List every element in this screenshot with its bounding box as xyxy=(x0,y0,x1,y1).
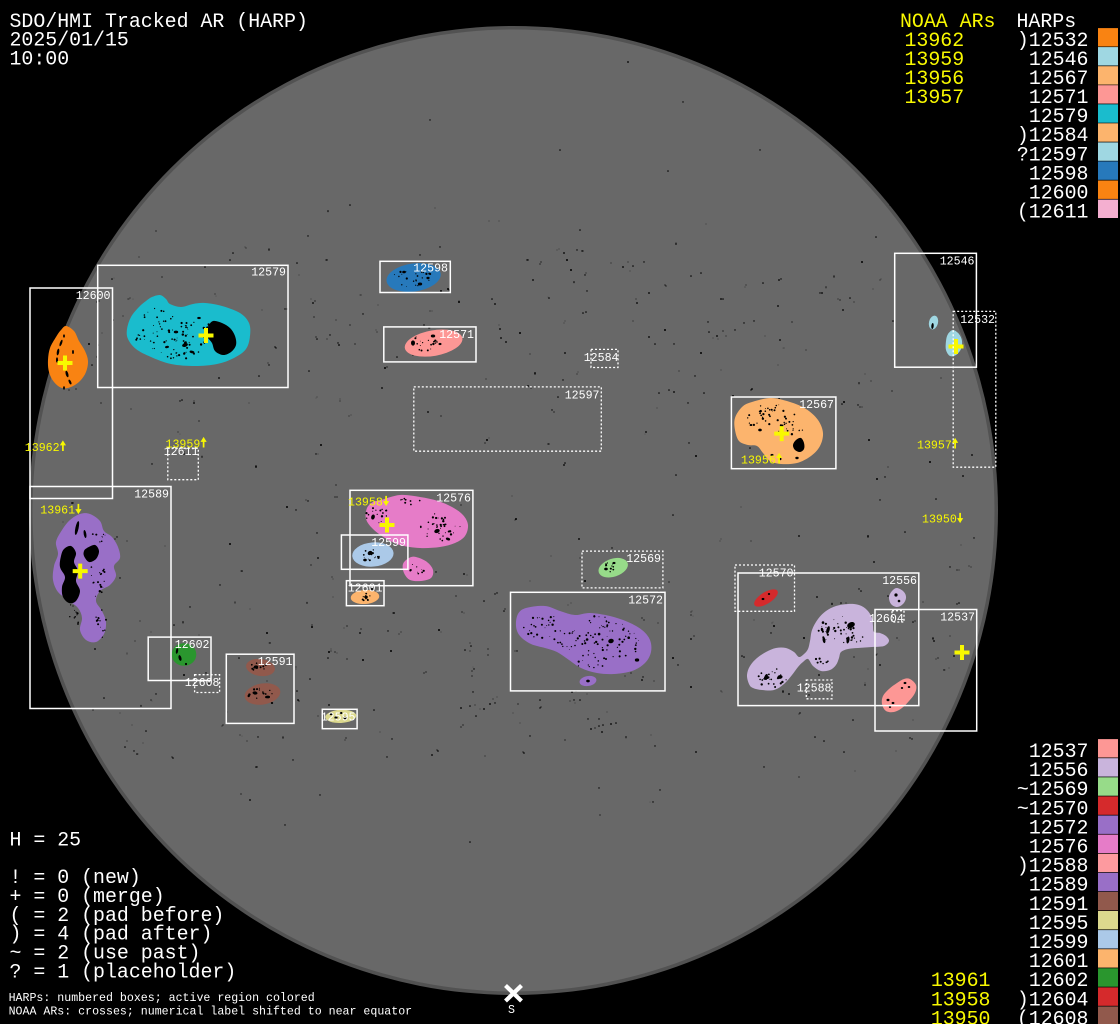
svg-text:12589: 12589 xyxy=(134,489,169,502)
svg-text:13957: 13957 xyxy=(905,86,965,109)
svg-text:12599: 12599 xyxy=(371,537,406,550)
svg-text:H = 25: H = 25 xyxy=(10,829,82,852)
svg-text:? = 1 (placeholder): ? = 1 (placeholder) xyxy=(10,961,237,984)
svg-text:S: S xyxy=(508,1004,515,1017)
svg-text:12576: 12576 xyxy=(436,492,471,505)
svg-text:12532: 12532 xyxy=(960,314,995,327)
svg-text:12598: 12598 xyxy=(413,262,448,275)
svg-text:12556: 12556 xyxy=(882,575,917,588)
svg-text:13950: 13950 xyxy=(931,1007,991,1024)
svg-text:12602: 12602 xyxy=(175,639,210,652)
svg-text:12579: 12579 xyxy=(251,266,286,279)
svg-text:12588: 12588 xyxy=(797,683,832,696)
svg-text:13962: 13962 xyxy=(25,442,60,455)
svg-text:13956: 13956 xyxy=(741,455,776,468)
svg-text:13959: 13959 xyxy=(166,439,201,452)
svg-text:12567: 12567 xyxy=(799,399,834,412)
svg-text:12537: 12537 xyxy=(940,612,975,625)
svg-text:(12608: (12608 xyxy=(1017,1007,1089,1024)
svg-text:12584: 12584 xyxy=(584,352,619,365)
svg-text:12591: 12591 xyxy=(258,656,293,669)
svg-text:12601: 12601 xyxy=(348,583,383,596)
svg-text:12597: 12597 xyxy=(565,389,600,402)
svg-text:13950: 13950 xyxy=(922,514,957,527)
svg-text:NOAA ARs: crosses; numerical l: NOAA ARs: crosses; numerical label shift… xyxy=(9,1005,413,1018)
svg-text:12600: 12600 xyxy=(76,290,111,303)
svg-text:10:00: 10:00 xyxy=(10,47,70,70)
svg-text:13957: 13957 xyxy=(917,440,952,453)
svg-text:12546: 12546 xyxy=(940,255,975,268)
svg-text:(12611: (12611 xyxy=(1017,201,1089,224)
svg-text:13958: 13958 xyxy=(348,497,383,510)
svg-text:12569: 12569 xyxy=(626,553,661,566)
svg-text:12604: 12604 xyxy=(869,613,904,626)
svg-text:HARPs: numbered boxes; active: HARPs: numbered boxes; active region col… xyxy=(9,992,315,1005)
svg-text:12570: 12570 xyxy=(759,568,794,581)
svg-text:12595: 12595 xyxy=(321,711,356,724)
svg-text:13961: 13961 xyxy=(40,505,75,518)
svg-text:12571: 12571 xyxy=(439,329,474,342)
svg-text:12608: 12608 xyxy=(185,677,220,690)
svg-text:12572: 12572 xyxy=(628,594,663,607)
